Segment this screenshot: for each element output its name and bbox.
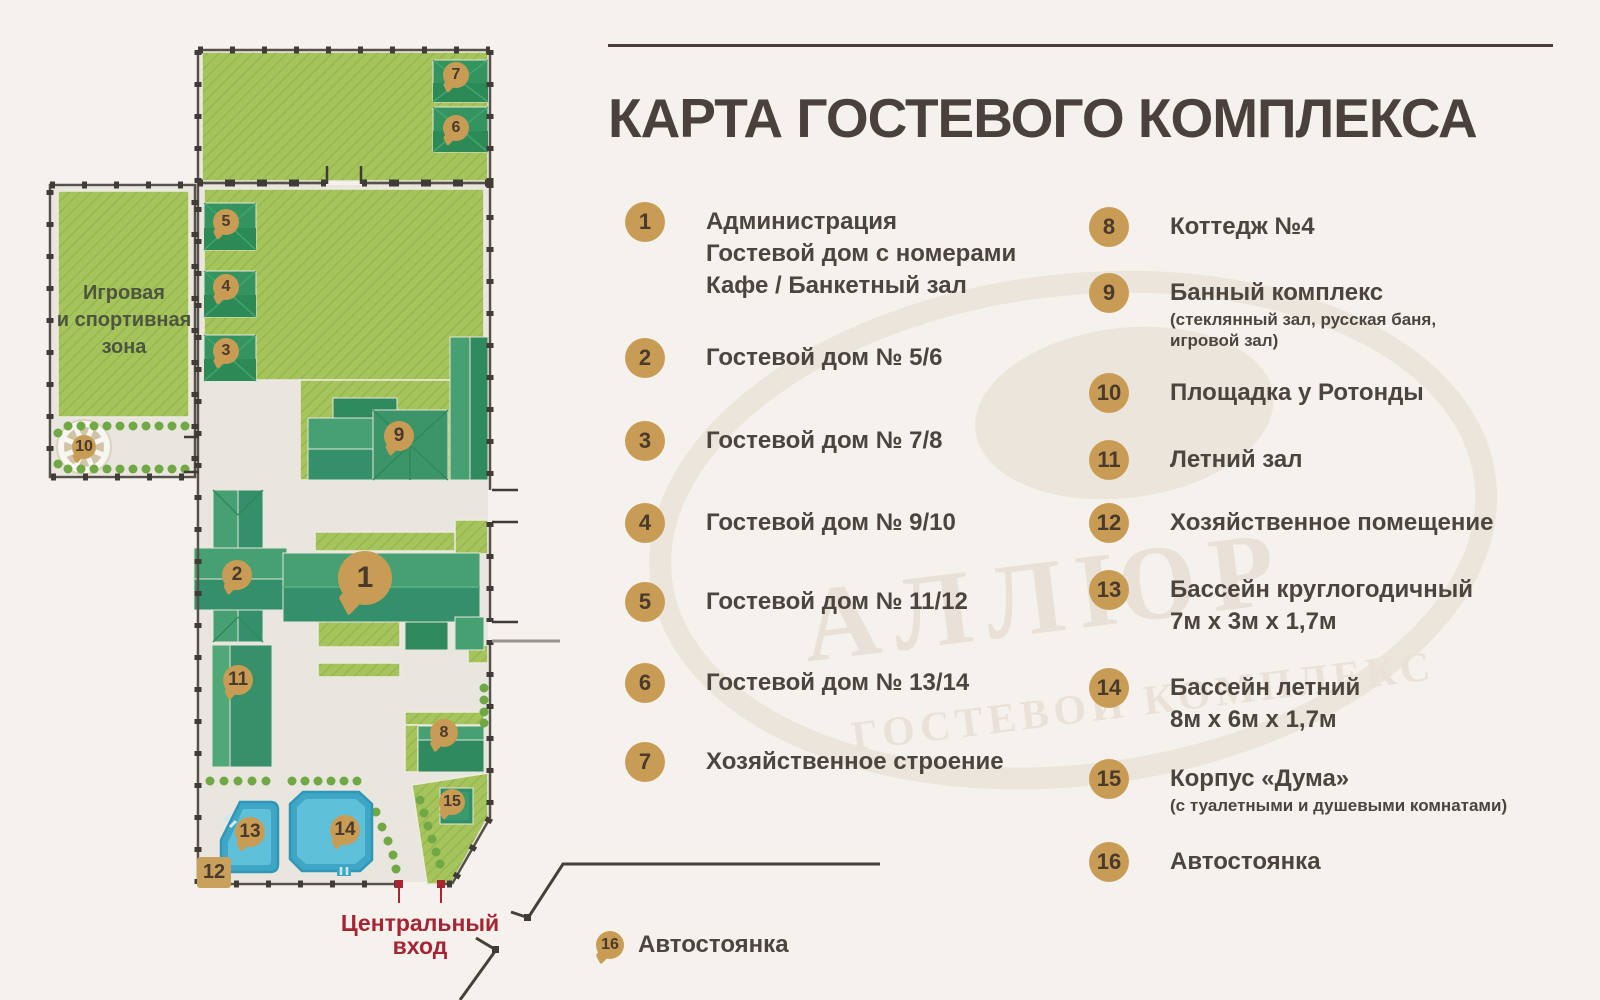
legend-badge-10: 10 [1089, 373, 1129, 413]
building-9 [308, 398, 448, 480]
legend-item-15-subline: (с туалетными и душевыми комнатами) [1170, 795, 1507, 816]
tree-icon [77, 422, 86, 431]
map-pin-13: 13 [235, 817, 265, 847]
rotunda-column-icon [65, 439, 73, 442]
parking-label: Автостоянка [638, 931, 789, 959]
tree-icon [424, 822, 433, 831]
map-pin-6: 6 [443, 115, 469, 141]
map-pin-2: 2 [222, 560, 252, 590]
legend-item-7: Хозяйственное строение [706, 746, 1004, 778]
tree-icon [480, 696, 489, 705]
legend-item-5-line: Гостевой дом № 11/12 [706, 586, 968, 618]
page-title: КАРТА ГОСТЕВОГО КОМПЛЕКСА [608, 86, 1558, 150]
tree-icon [288, 777, 297, 786]
legend-badge-5: 5 [625, 582, 665, 622]
tree-icon [314, 777, 323, 786]
tree-icon [142, 422, 151, 431]
legend-item-14-line: 8м х 6м х 1,7м [1170, 704, 1360, 736]
legend-badge-8: 8 [1089, 207, 1129, 247]
legend-item-15: Корпус «Дума»(с туалетными и душевыми ко… [1170, 763, 1507, 816]
tree-icon [90, 422, 99, 431]
legend-item-2-line: Гостевой дом № 5/6 [706, 342, 943, 374]
legend-badge-13: 13 [1089, 570, 1129, 610]
legend-item-3: Гостевой дом № 7/8 [706, 425, 943, 457]
tree-icon [54, 429, 63, 438]
tree-icon [262, 777, 271, 786]
legend-badge-11: 11 [1089, 440, 1129, 480]
legend-item-12-line: Хозяйственное помещение [1170, 507, 1493, 539]
legend-item-15-line: Корпус «Дума» [1170, 763, 1507, 795]
legend-item-11-line: Летний зал [1170, 444, 1303, 476]
tree-icon [155, 422, 164, 431]
legend-item-8-line: Коттедж №4 [1170, 211, 1315, 243]
map-pin-3: 3 [213, 338, 239, 364]
tree-icon [420, 809, 429, 818]
legend-badge-4: 4 [625, 503, 665, 543]
legend-badge-7: 7 [625, 742, 665, 782]
legend-item-1: АдминистрацияГостевой дом с номерамиКафе… [706, 206, 1016, 302]
tree-icon [64, 422, 73, 431]
rotunda-column-icon [89, 428, 92, 436]
legend-item-8: Коттедж №4 [1170, 211, 1315, 243]
rotunda-column-icon [95, 452, 103, 455]
tree-icon [248, 777, 257, 786]
tree-icon [416, 796, 425, 805]
tree-icon [90, 465, 99, 474]
main-parcel-ground [200, 185, 488, 882]
trees [54, 422, 489, 874]
parking-callout: 16 Автостоянка [596, 931, 789, 959]
legend-item-5: Гостевой дом № 11/12 [706, 586, 968, 618]
buildings [194, 60, 488, 824]
tree-icon [372, 808, 381, 817]
rotunda-column-icon [76, 428, 79, 436]
legend-item-4-line: Гостевой дом № 9/10 [706, 507, 956, 539]
legend-item-6-line: Гостевой дом № 13/14 [706, 667, 969, 699]
legend-item-14: Бассейн летний8м х 6м х 1,7м [1170, 672, 1360, 736]
tree-icon [480, 708, 489, 717]
legend-item-6: Гостевой дом № 13/14 [706, 667, 969, 699]
map-pin-4: 4 [213, 274, 239, 300]
legend-badge-6: 6 [625, 663, 665, 703]
legend-item-9-line: Банный комплекс [1170, 277, 1436, 309]
header-rule [608, 44, 1553, 47]
lawn-areas [58, 52, 488, 884]
legend-item-7-line: Хозяйственное строение [706, 746, 1004, 778]
map-pin-5: 5 [213, 209, 239, 235]
tree-icon [392, 865, 401, 874]
tree-icon [234, 777, 243, 786]
rotunda-column-icon [65, 452, 73, 455]
legend-badge-16: 16 [1089, 842, 1129, 882]
building-11 [212, 645, 272, 767]
tree-icon [181, 465, 190, 474]
tree-icon [129, 465, 138, 474]
tree-icon [181, 422, 190, 431]
tree-icon [428, 835, 437, 844]
tree-icon [64, 465, 73, 474]
tree-icon [168, 422, 177, 431]
rotunda-column-icon [89, 458, 92, 466]
map-pin-14: 14 [330, 815, 360, 845]
map-pin-9: 9 [384, 421, 414, 451]
tree-icon [168, 465, 177, 474]
legend-badge-12: 12 [1089, 503, 1129, 543]
legend-badge-14: 14 [1089, 668, 1129, 708]
legend-item-3-line: Гостевой дом № 7/8 [706, 425, 943, 457]
legend-item-16: Автостоянка [1170, 846, 1321, 878]
tree-icon [155, 465, 164, 474]
tree-icon [103, 465, 112, 474]
tree-icon [129, 422, 138, 431]
tree-icon [389, 851, 398, 860]
play-sport-zone-label: Игровая и спортивная зона [54, 280, 194, 361]
parking-pin-16: 16 [596, 931, 624, 959]
tree-icon [327, 777, 336, 786]
guest-complex-map-page: { "title": "КАРТА ГОСТЕВОГО КОМПЛЕКСА", … [0, 0, 1600, 1000]
legend-badge-15: 15 [1089, 759, 1129, 799]
legend-item-10: Площадка у Ротонды [1170, 377, 1424, 409]
legend-item-1-line: Администрация [706, 206, 1016, 238]
legend-item-10-line: Площадка у Ротонды [1170, 377, 1424, 409]
legend-item-9-subline: игровой зал) [1170, 330, 1436, 351]
tree-icon [432, 848, 441, 857]
tree-icon [378, 823, 387, 832]
legend-item-13: Бассейн круглогодичный7м х 3м х 1,7м [1170, 574, 1473, 638]
legend-badge-3: 3 [625, 421, 665, 461]
utility-area-12-badge: 12 [197, 857, 231, 888]
map-pin-8: 8 [430, 719, 458, 747]
legend-item-14-line: Бассейн летний [1170, 672, 1360, 704]
legend-item-11: Летний зал [1170, 444, 1303, 476]
legend-badge-9: 9 [1089, 273, 1129, 313]
map-pin-7: 7 [443, 62, 469, 88]
tree-icon [340, 777, 349, 786]
map-pin-10: 10 [72, 435, 96, 459]
building-right-wing [450, 337, 488, 480]
legend-item-1-line: Гостевой дом с номерами [706, 238, 1016, 270]
legend-item-16-line: Автостоянка [1170, 846, 1321, 878]
tree-icon [480, 719, 489, 728]
entrance-marks [395, 880, 445, 903]
tree-icon [480, 684, 489, 693]
legend-item-4: Гостевой дом № 9/10 [706, 507, 956, 539]
rotunda-column-icon [95, 439, 103, 442]
legend-item-1-line: Кафе / Банкетный зал [706, 270, 1016, 302]
tree-icon [142, 465, 151, 474]
tree-icon [436, 860, 445, 869]
legend-item-13-line: 7м х 3м х 1,7м [1170, 606, 1473, 638]
tree-icon [220, 777, 229, 786]
tree-icon [353, 777, 362, 786]
legend-item-2: Гостевой дом № 5/6 [706, 342, 943, 374]
legend-badge-2: 2 [625, 338, 665, 378]
tree-icon [54, 460, 63, 469]
central-entrance-label: Центральный вход [310, 912, 530, 958]
legend-item-9-subline: (стеклянный зал, русская баня, [1170, 309, 1436, 330]
legend-badge-1: 1 [625, 202, 665, 242]
tree-icon [384, 837, 393, 846]
legend-item-12: Хозяйственное помещение [1170, 507, 1493, 539]
tree-icon [103, 422, 112, 431]
map-pin-1: 1 [338, 551, 392, 605]
tree-icon [77, 465, 86, 474]
tree-icon [301, 777, 310, 786]
map-pin-15: 15 [439, 789, 465, 815]
tree-icon [206, 777, 215, 786]
tree-icon [116, 422, 125, 431]
legend-item-13-line: Бассейн круглогодичный [1170, 574, 1473, 606]
fences [50, 50, 560, 884]
map-pin-11: 11 [223, 665, 253, 695]
legend-item-9: Банный комплекс(стеклянный зал, русская … [1170, 277, 1436, 351]
tree-icon [116, 465, 125, 474]
